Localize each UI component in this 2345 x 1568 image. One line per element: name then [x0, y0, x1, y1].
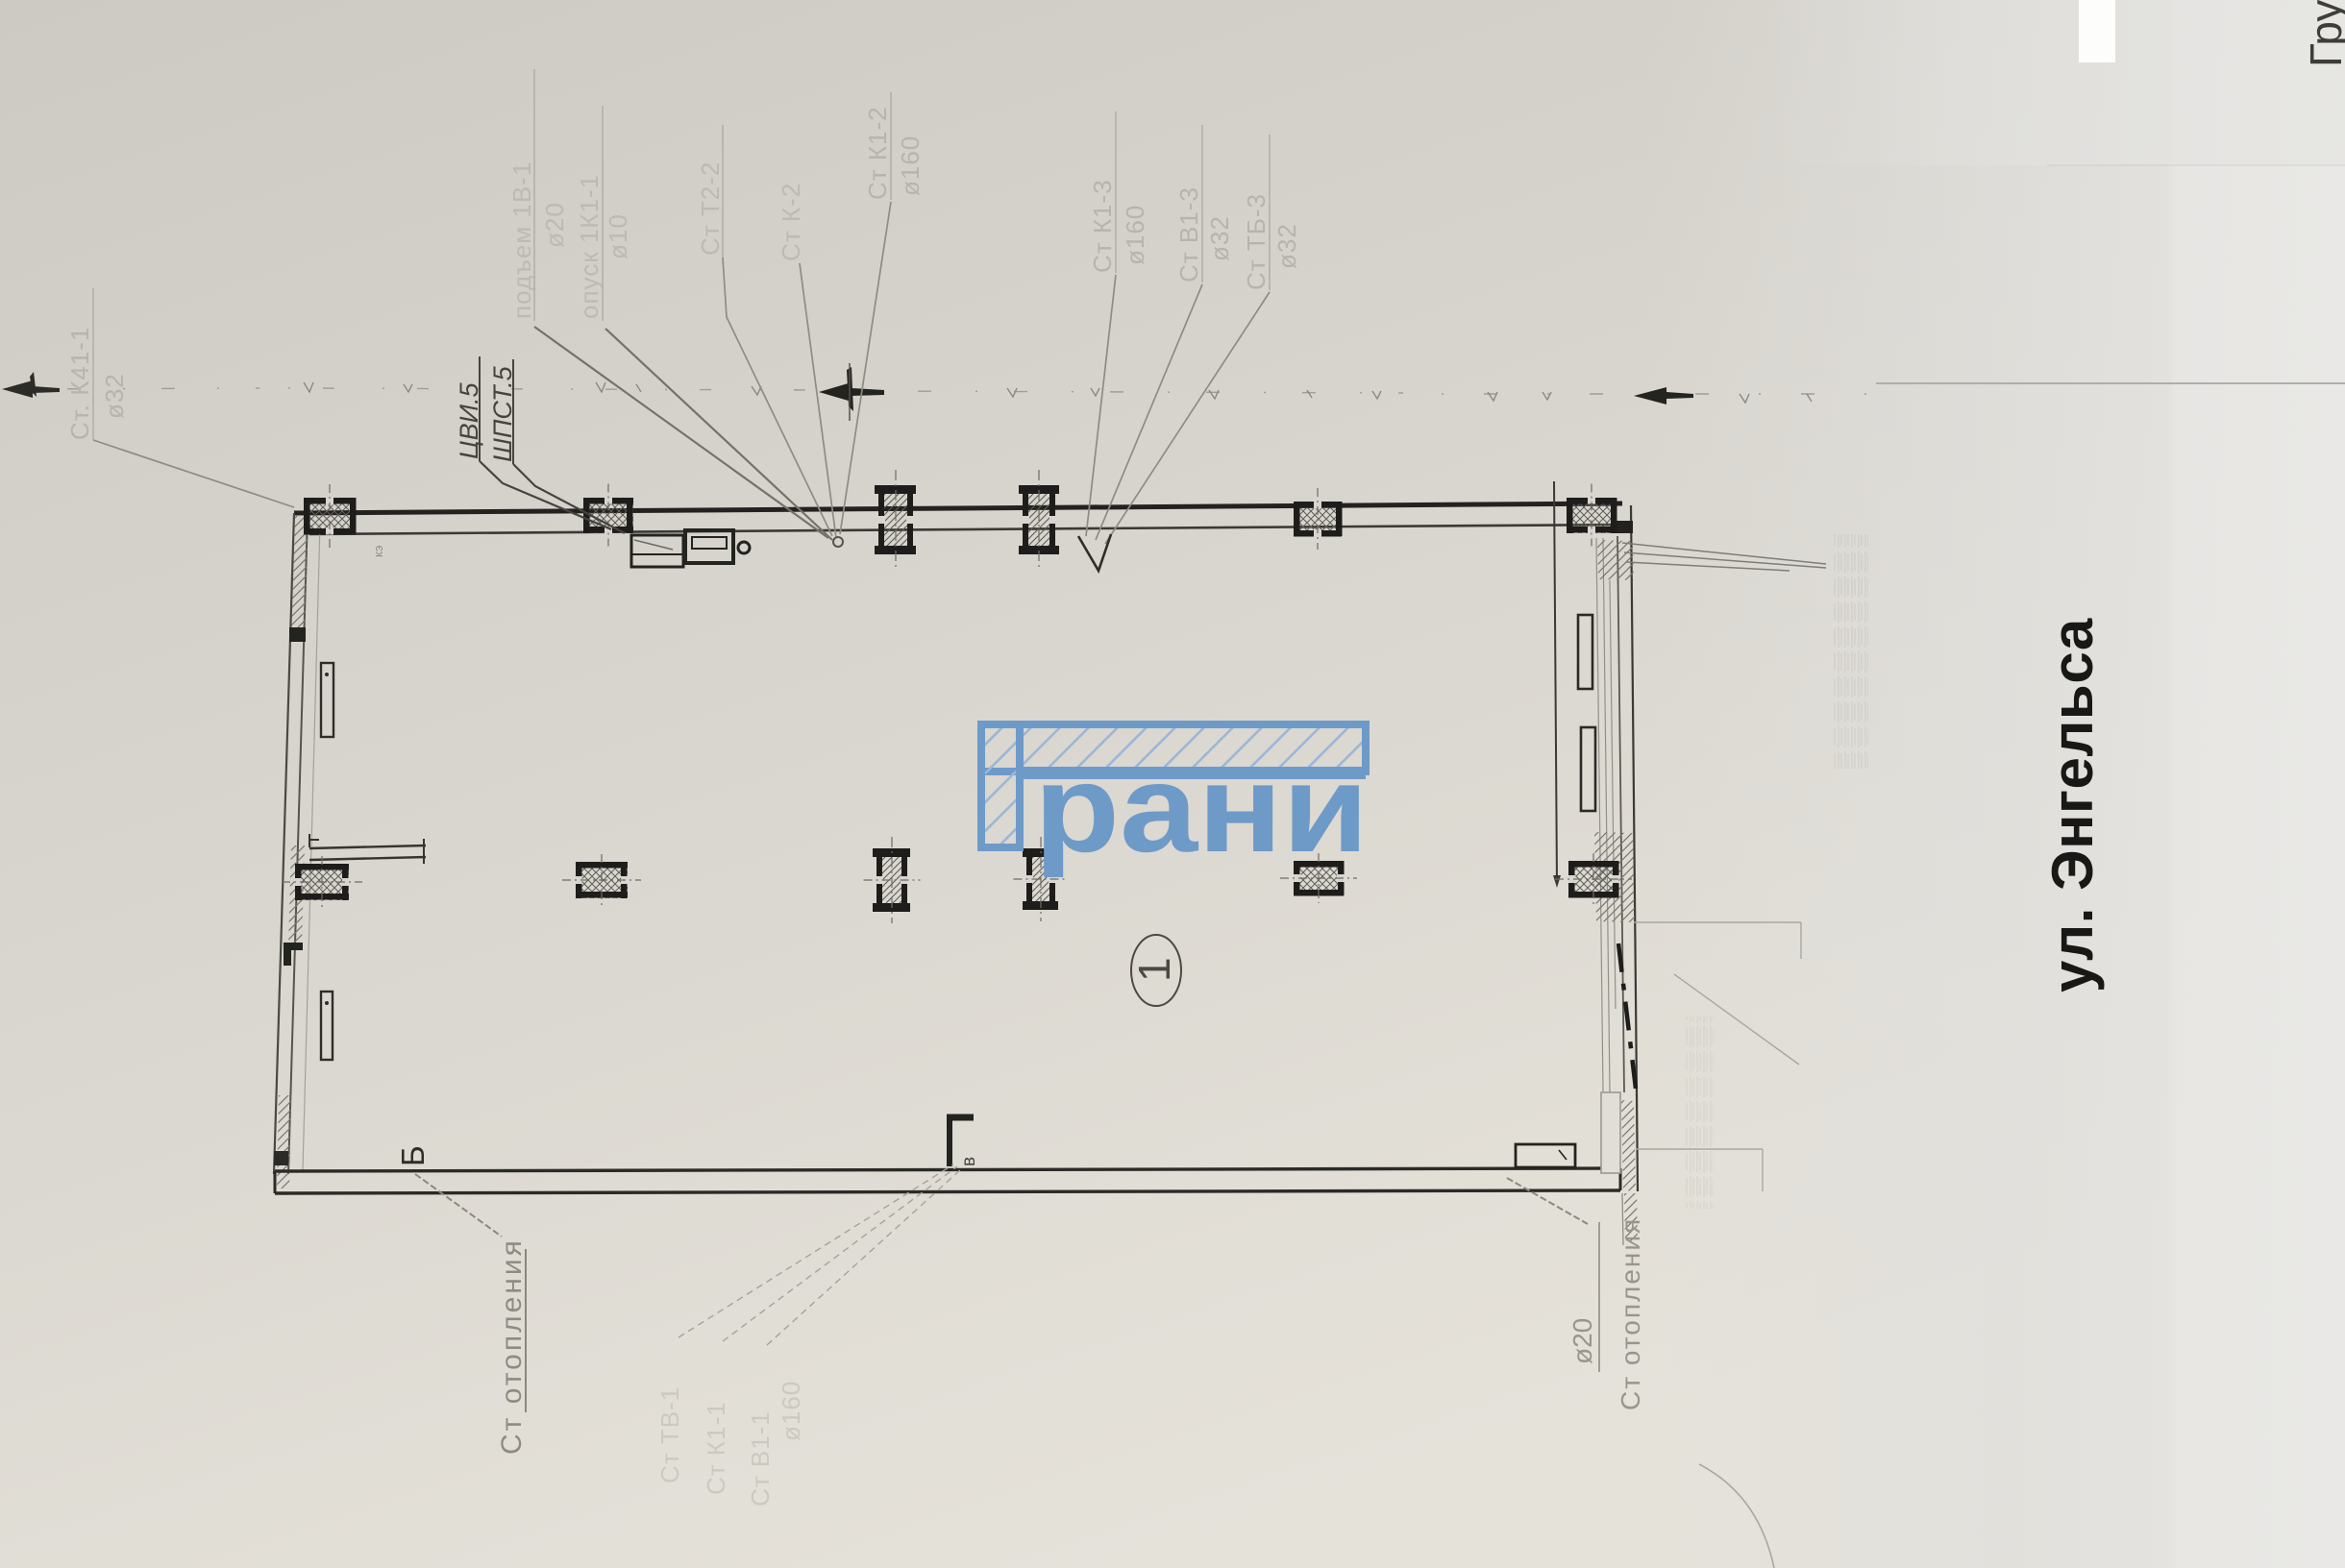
- svg-text:Ст ТВ-1: Ст ТВ-1: [655, 1386, 684, 1483]
- svg-text:ø20: ø20: [1567, 1318, 1597, 1364]
- svg-text:1: 1: [1129, 957, 1179, 982]
- svg-text:Ст ТБ-3: Ст ТБ-3: [1242, 193, 1271, 290]
- svg-text:ø160: ø160: [896, 135, 925, 196]
- svg-text:Б: Б: [395, 1145, 431, 1166]
- svg-text:Ст отопления: Ст отопления: [496, 1237, 528, 1455]
- svg-text:ул. Энгельса: ул. Энгельса: [2040, 618, 2105, 992]
- svg-text:Ст К1-3: Ст К1-3: [1088, 179, 1117, 273]
- svg-text:Ст Т2-2: Ст Т2-2: [696, 161, 725, 256]
- svg-text:ø10: ø10: [604, 213, 632, 259]
- svg-text:ø32: ø32: [1272, 223, 1301, 269]
- svg-text:Ст К-2: Ст К-2: [777, 183, 805, 261]
- svg-text:рани: рани: [1034, 738, 1369, 878]
- svg-text:Ст К1-2: Ст К1-2: [863, 106, 892, 200]
- svg-text:Ст В1-1: Ст В1-1: [746, 1410, 775, 1507]
- svg-text:ø20: ø20: [540, 202, 569, 248]
- svg-text:ø160: ø160: [777, 1381, 805, 1441]
- svg-text:ø160: ø160: [1121, 205, 1149, 265]
- svg-text:в: в: [959, 1157, 979, 1166]
- svg-text:Ст К1-1: Ст К1-1: [702, 1401, 730, 1495]
- svg-text:кэ: кэ: [371, 545, 385, 557]
- svg-text:подъем 1В-1: подъем 1В-1: [507, 161, 536, 319]
- svg-text:ø32: ø32: [1205, 215, 1234, 261]
- svg-text:Ст. К41-1: Ст. К41-1: [65, 327, 94, 440]
- svg-text:ø32: ø32: [100, 373, 129, 419]
- svg-text:Ст В1-3: Ст В1-3: [1174, 186, 1203, 282]
- svg-text:Ст отопления: Ст отопления: [1616, 1217, 1645, 1410]
- svg-text:опуск 1К1-1: опуск 1К1-1: [575, 174, 604, 319]
- svg-text:Гру: Гру: [2301, 0, 2345, 67]
